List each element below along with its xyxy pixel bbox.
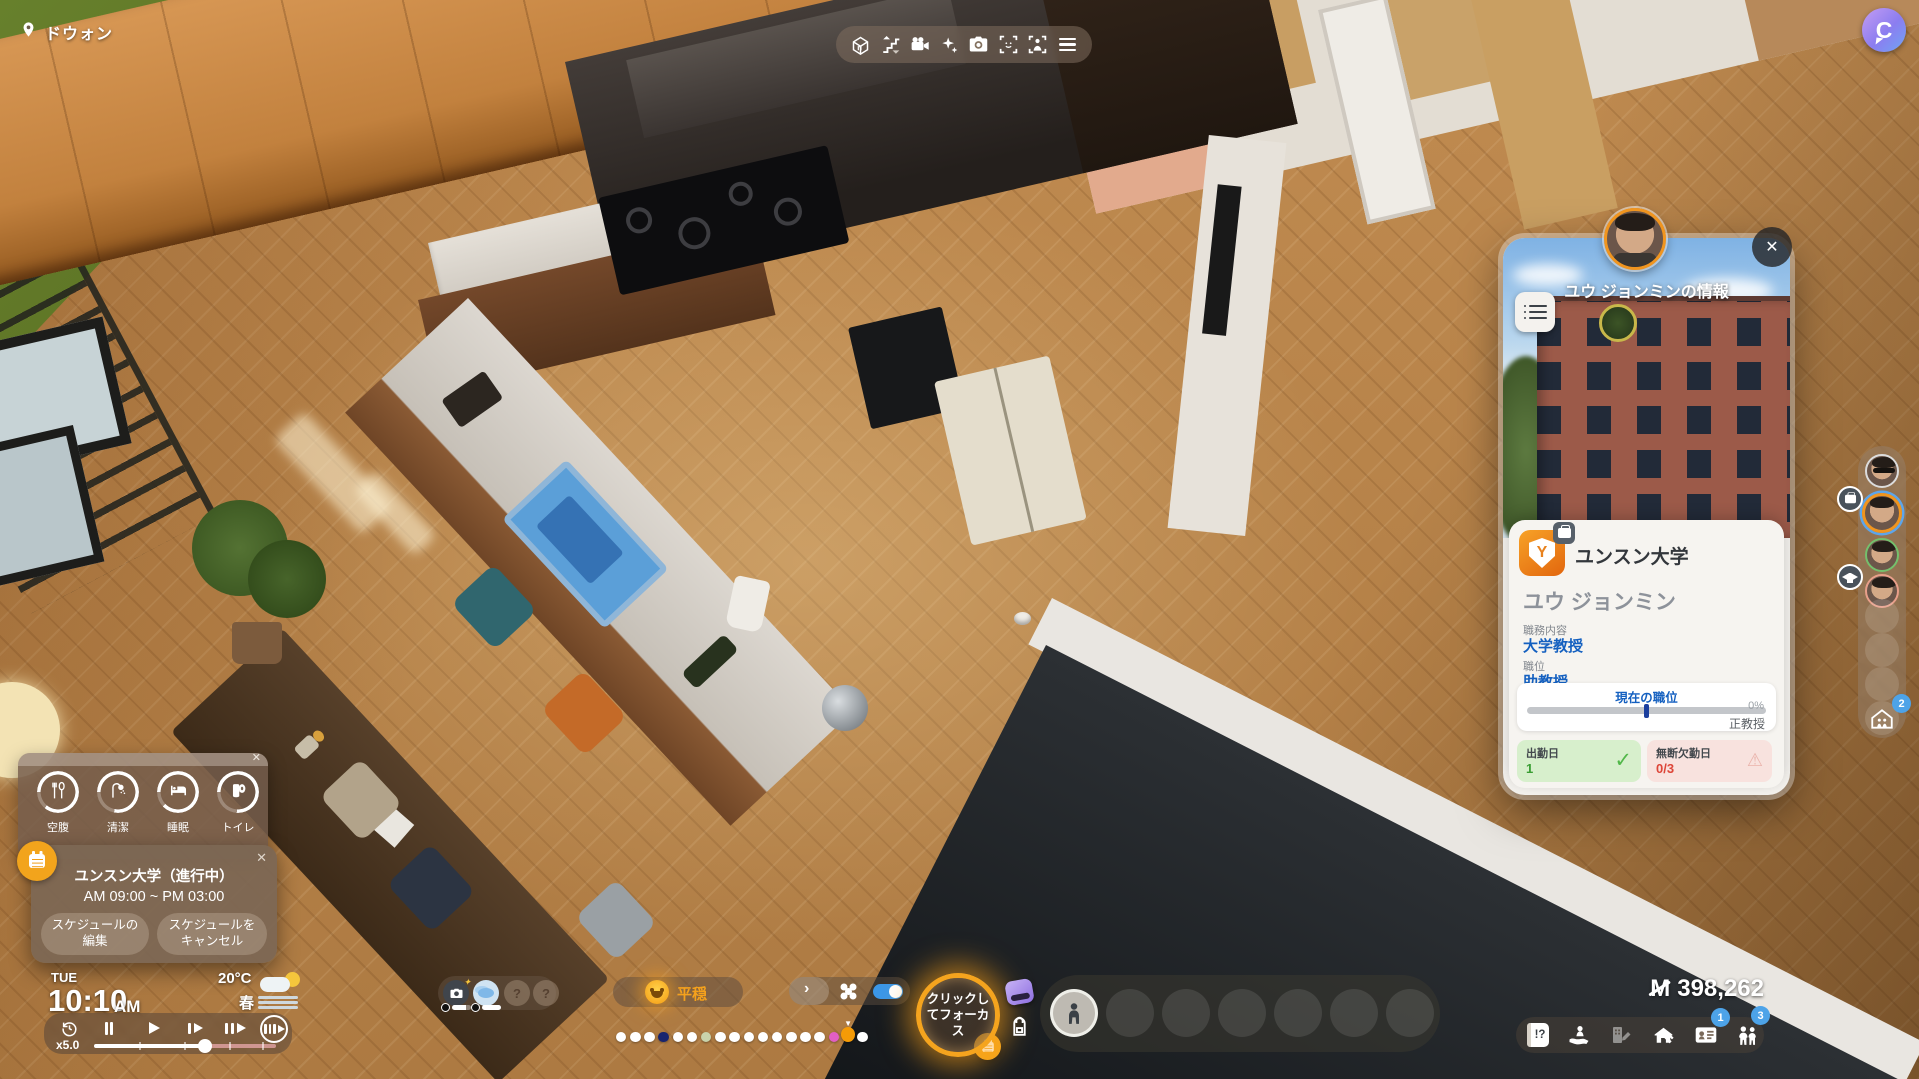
timeline-dot[interactable]: [614, 1026, 628, 1042]
time-controls: x5.0: [44, 1013, 292, 1054]
face-focus-icon[interactable]: [997, 34, 1019, 56]
map-pin-icon: [20, 20, 37, 44]
list-icon[interactable]: [1515, 292, 1555, 332]
clover-icon: [845, 988, 852, 995]
timeline-dots: ▼: [614, 1026, 869, 1042]
mood-smiley-icon: [645, 980, 669, 1004]
focus-button-label: クリックし てフォーカ ス: [927, 991, 990, 1040]
check-icon: ✓: [1614, 748, 1632, 773]
edit-schedule-button[interactable]: スケジュールの 編集: [41, 913, 149, 955]
scene-knife-block: [441, 370, 503, 428]
build-home-icon[interactable]: [1650, 1022, 1676, 1048]
character-slot-empty[interactable]: [1274, 989, 1322, 1037]
bed-icon: [150, 781, 206, 800]
timeline-dot[interactable]: [699, 1026, 713, 1042]
id-card-badge: 1: [1711, 1008, 1730, 1027]
pause-button[interactable]: [96, 1017, 122, 1039]
community-logo[interactable]: C: [1862, 8, 1906, 52]
character-name: ユウ ジョンミン: [1523, 586, 1676, 616]
game-screen: ドウォン C ✕: [0, 0, 1919, 1079]
timeline-dot[interactable]: [813, 1026, 827, 1042]
active-item-slots: ✦ ? ?: [438, 976, 556, 1010]
job-info-card: Y ユンスン大学 ユウ ジョンミン 職務内容 大学教授 職位 助教授 現在の職位…: [1509, 520, 1784, 788]
need-label: 睡眠: [150, 819, 206, 835]
university-crest: [1599, 304, 1637, 342]
need-label: 清潔: [90, 819, 146, 835]
timeline-dot[interactable]: [628, 1026, 642, 1042]
attendance-value: 1: [1526, 761, 1533, 776]
absence-chip: 無断欠勤日 0/3 ⚠: [1647, 740, 1772, 782]
timeline-dot[interactable]: [671, 1026, 685, 1042]
timeline-dot[interactable]: [742, 1026, 756, 1042]
scene-pet-bowl: [1014, 612, 1031, 625]
schedule-time-range: AM 09:00 ~ PM 03:00: [31, 889, 277, 905]
rewind-icon[interactable]: [56, 1017, 82, 1039]
timeline-dot[interactable]: [827, 1026, 841, 1042]
rank-progress-bar: [1527, 707, 1766, 714]
journal-glyph: !?: [1527, 1023, 1549, 1047]
timeline-dot[interactable]: [756, 1026, 770, 1042]
timeline-dot[interactable]: [855, 1026, 869, 1042]
character-slot-empty[interactable]: [1330, 989, 1378, 1037]
briefcase-icon: [1553, 522, 1575, 544]
close-icon[interactable]: ✕: [256, 850, 267, 866]
timeline-dot[interactable]: [798, 1026, 812, 1042]
relationships-icon[interactable]: [1734, 1022, 1760, 1048]
toilet-paper-icon: [210, 781, 266, 800]
rank-progress-marker: [1644, 704, 1649, 718]
character-avatar[interactable]: [1604, 208, 1666, 270]
photo-mode-icon[interactable]: [968, 34, 990, 56]
avatar-3[interactable]: [1865, 538, 1899, 572]
speed-multiplier: x5.0: [56, 1038, 79, 1052]
unknown-slot[interactable]: ?: [533, 980, 559, 1006]
menu-icon[interactable]: [1056, 34, 1078, 56]
character-bar: [1040, 975, 1440, 1052]
character-slot-empty[interactable]: [1162, 989, 1210, 1037]
speed-slider-knob[interactable]: [198, 1039, 212, 1053]
cancel-schedule-button[interactable]: スケジュールを キャンセル: [157, 913, 267, 955]
scene-bottle: [681, 634, 738, 690]
unknown-slot[interactable]: ?: [504, 980, 530, 1006]
absence-label: 無断欠勤日: [1656, 745, 1711, 761]
speed2-button[interactable]: [182, 1017, 208, 1039]
avatar-1[interactable]: [1865, 454, 1899, 488]
timeline-dot[interactable]: [713, 1026, 727, 1042]
scene-burner: [771, 195, 805, 229]
schedule-calendar-icon[interactable]: [17, 841, 57, 881]
duty-value: 大学教授: [1523, 635, 1583, 656]
needs-popup-header[interactable]: [18, 753, 268, 766]
rail-slot-empty[interactable]: [1865, 633, 1899, 667]
floor-level-icon[interactable]: [879, 34, 901, 56]
scene-pot: [822, 685, 868, 731]
build-city-icon[interactable]: [1608, 1022, 1634, 1048]
calendar-glyph: [29, 854, 45, 868]
warning-icon: ⚠: [1747, 750, 1763, 771]
close-icon[interactable]: ✕: [252, 751, 261, 764]
household-count-badge: 2: [1892, 694, 1911, 713]
need-label: 空腹: [30, 819, 86, 835]
needs-popup: ✕ 空腹 清潔 睡眠 トイレ: [18, 753, 268, 859]
timeline-dot[interactable]: [784, 1026, 798, 1042]
need-sleep[interactable]: 睡眠: [150, 771, 206, 835]
journal-icon[interactable]: !?: [1525, 1022, 1551, 1048]
location-indicator: ドウォン: [20, 20, 113, 44]
camera-toolbar: [836, 26, 1092, 63]
effects-icon[interactable]: [938, 34, 960, 56]
food-icon: [30, 781, 86, 800]
character-info-panel: ユウ ジョンミンの情報 ✕ Y ユンスン大学 ユウ ジョンミン 職務内容 大学教…: [1503, 238, 1790, 795]
timeline-dot[interactable]: [657, 1026, 671, 1042]
schedule-popup: ✕ ユンスン大学（進行中） AM 09:00 ~ PM 03:00 スケジュール…: [31, 845, 277, 963]
wallet: M398,262: [1640, 975, 1764, 1003]
speed3-button[interactable]: [222, 1017, 248, 1039]
mood-indicator[interactable]: 平穏: [613, 977, 743, 1007]
life-mode-icon[interactable]: [1566, 1022, 1592, 1048]
scene-burner: [675, 214, 713, 252]
timeline-dot[interactable]: [770, 1026, 784, 1042]
item-timer: [471, 1003, 501, 1012]
character-slot-empty[interactable]: [1386, 989, 1434, 1037]
temperature-label: 20°C: [218, 970, 252, 987]
timeline-dot[interactable]: ▼: [841, 1026, 855, 1042]
relationships-badge: 3: [1751, 1006, 1770, 1025]
timeline-dot[interactable]: [642, 1026, 656, 1042]
character-slot-empty[interactable]: [1106, 989, 1154, 1037]
scene-vase: [293, 734, 320, 761]
character-slots-empty: [1106, 989, 1434, 1037]
rank-progress-percent: 0%: [1748, 700, 1764, 712]
auto-toggle[interactable]: [873, 984, 903, 999]
speed-slider[interactable]: [94, 1044, 276, 1048]
next-rank-label: 正教授: [1729, 715, 1765, 732]
avatar-2-selected[interactable]: [1862, 493, 1902, 533]
sparkle-icon: ✦: [463, 977, 471, 988]
need-label: トイレ: [210, 819, 266, 835]
scene-burner: [623, 205, 654, 236]
active-character-slot[interactable]: [1050, 989, 1098, 1037]
quick-settings-bar: ›: [789, 977, 910, 1005]
scene-plant: [248, 540, 326, 618]
chevron-right-icon[interactable]: ›: [804, 980, 809, 998]
house-view-icon[interactable]: [850, 34, 872, 56]
university-building: [1537, 296, 1790, 538]
absence-value: 0/3: [1656, 761, 1674, 776]
household-avatar-rail: 2: [1858, 446, 1906, 738]
rank-progress-card: 現在の職位 0% 正教授: [1517, 683, 1776, 731]
rail-slot-empty[interactable]: [1865, 599, 1899, 633]
mood-label: 平穏: [677, 983, 707, 1004]
wallet-amount: 398,262: [1677, 975, 1764, 1002]
season-label: 春: [239, 992, 254, 1013]
scene-plant-pot: [232, 622, 282, 664]
scene-burner: [726, 179, 755, 208]
attendance-chip: 出勤日 1 ✓: [1517, 740, 1641, 782]
graduation-badge-icon: [1837, 564, 1863, 590]
timeline-marker: ▼: [844, 1019, 852, 1028]
schedule-title: ユンスン大学（進行中）: [31, 865, 277, 886]
workplace-name: ユンスン大学: [1575, 542, 1689, 569]
item-timer: [441, 1003, 471, 1012]
timeline-dot[interactable]: [728, 1026, 742, 1042]
need-hunger[interactable]: 空腹: [30, 771, 86, 835]
need-hygiene[interactable]: 清潔: [90, 771, 146, 835]
video-camera-icon[interactable]: [909, 34, 931, 56]
bottom-right-menu: !? 1 3: [1516, 1017, 1764, 1053]
need-toilet[interactable]: トイレ: [210, 771, 266, 835]
brand-letter: C: [1876, 17, 1893, 44]
backpack-icon[interactable]: [1007, 1014, 1032, 1044]
briefcase-badge-icon: [1837, 486, 1863, 512]
university-logo-letter: Y: [1529, 538, 1555, 568]
household-home-icon[interactable]: [1869, 706, 1895, 732]
focus-character-button[interactable]: クリックし てフォーカ ス: [916, 973, 1000, 1057]
body-focus-icon[interactable]: [1027, 34, 1049, 56]
location-name: ドウォン: [45, 20, 113, 44]
close-icon[interactable]: ✕: [1752, 227, 1792, 267]
shower-icon: [90, 781, 146, 800]
weather-icon: [258, 972, 302, 1008]
attendance-label: 出勤日: [1526, 745, 1559, 761]
speed-max-button[interactable]: [260, 1015, 288, 1043]
timeline-dot[interactable]: [685, 1026, 699, 1042]
phone-icon[interactable]: [1004, 978, 1035, 1006]
currency-symbol: M: [1650, 975, 1670, 1003]
character-slot-empty[interactable]: [1218, 989, 1266, 1037]
play-button[interactable]: [140, 1017, 166, 1039]
